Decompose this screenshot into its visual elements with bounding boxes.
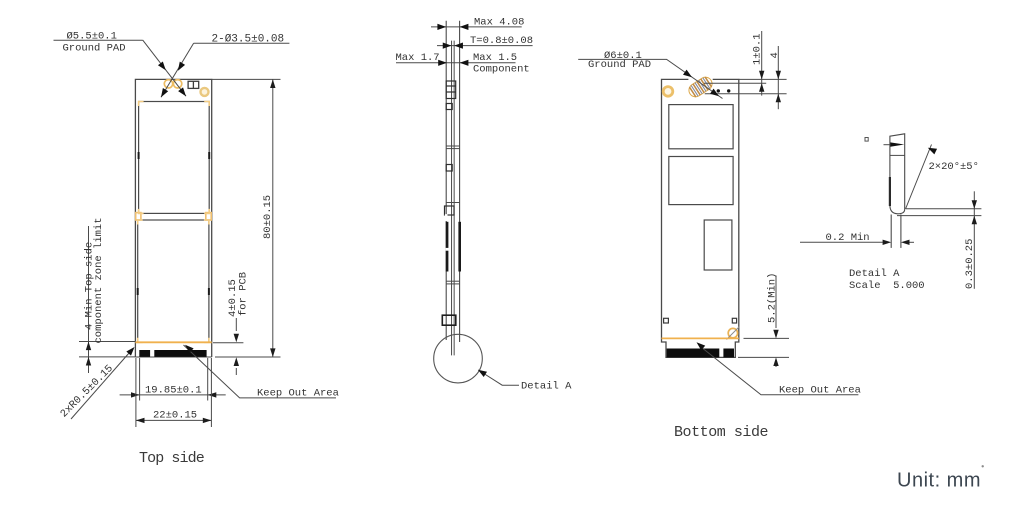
svg-text:Top side: Top side — [139, 450, 205, 467]
svg-text:Max 1.7: Max 1.7 — [396, 52, 440, 64]
svg-text:Ground PAD: Ground PAD — [63, 42, 126, 54]
svg-text:0.3±0.25: 0.3±0.25 — [964, 239, 976, 289]
svg-text:4: 4 — [769, 52, 781, 58]
svg-text:Keep Out Area: Keep Out Area — [257, 388, 339, 400]
svg-text:Detail A: Detail A — [521, 380, 572, 392]
svg-text:Detail A: Detail A — [849, 268, 900, 280]
svg-text:22±0.15: 22±0.15 — [153, 409, 197, 421]
svg-text:Ground PAD: Ground PAD — [588, 59, 651, 71]
svg-text:1±0.1: 1±0.1 — [752, 33, 764, 65]
svg-text:19.85±0.1: 19.85±0.1 — [145, 385, 202, 397]
svg-text:80±0.15: 80±0.15 — [262, 195, 274, 239]
svg-text:Keep Out Area: Keep Out Area — [779, 385, 861, 397]
svg-text:component zone limit: component zone limit — [93, 217, 105, 343]
svg-text:0.2 Min: 0.2 Min — [826, 232, 870, 244]
svg-text:for PCB: for PCB — [238, 272, 250, 316]
svg-text:Bottom side: Bottom side — [674, 424, 769, 441]
svg-text:Unit: mm: Unit: mm — [897, 470, 981, 492]
svg-text:5.2(Min): 5.2(Min) — [767, 273, 779, 323]
svg-text:Max 4.08: Max 4.08 — [474, 17, 524, 29]
svg-text:T=0.8±0.08: T=0.8±0.08 — [470, 35, 533, 47]
svg-text:2×20°±5°: 2×20°±5° — [929, 161, 979, 173]
svg-text:Scale 5.000: Scale 5.000 — [849, 280, 925, 292]
svg-text:Component: Component — [473, 63, 530, 75]
